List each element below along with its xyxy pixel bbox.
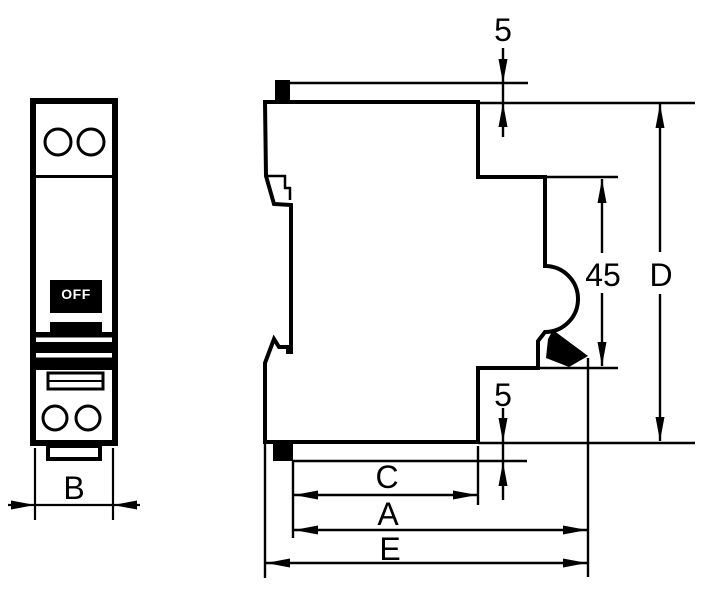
top-terminal-screw-left: [45, 129, 71, 155]
h45-arrow-down-icon: [598, 342, 607, 366]
dim-label-b: B: [57, 472, 91, 504]
din-clip-foot: [48, 446, 100, 459]
d-arrow-up-icon: [656, 104, 665, 128]
dim-label-45: 45: [583, 259, 623, 291]
band-white-line-1: [36, 338, 112, 343]
five-top-arrow-up-icon: [499, 103, 508, 127]
five-top-arrow-down-icon: [499, 59, 508, 83]
dim-label-5-top: 5: [488, 14, 518, 46]
five-bottom-arrow-down-icon: [499, 418, 508, 442]
bottom-terminal-block: [273, 444, 293, 461]
five-bottom-arrow-up-icon: [499, 462, 508, 486]
dim-label-d: D: [645, 259, 677, 291]
c-arrow-left-icon: [294, 491, 318, 500]
e-arrow-left-icon: [266, 559, 290, 568]
b-arrow-left-icon: [11, 501, 35, 510]
din-clip-hook: [546, 330, 588, 367]
toggle-switch-base: [50, 322, 102, 332]
c-arrow-right-icon: [453, 491, 477, 500]
dimension-a: [293, 526, 588, 535]
bottom-terminal-screw-right: [76, 406, 100, 430]
b-arrow-right-icon: [113, 501, 137, 510]
side-view: [265, 48, 695, 578]
drawing-linework: [0, 0, 714, 614]
front-view: [8, 101, 140, 520]
bottom-terminal-screw-left: [43, 406, 67, 430]
d-arrow-down-icon: [656, 417, 665, 441]
dim-label-c: C: [370, 461, 404, 493]
top-terminal-screw-right: [78, 129, 104, 155]
dim-label-e: E: [373, 533, 407, 565]
top-terminal-block: [275, 80, 290, 102]
side-profile-outline: [265, 102, 578, 442]
a-arrow-right-icon: [563, 526, 587, 535]
a-arrow-left-icon: [294, 526, 318, 535]
h45-arrow-up-icon: [598, 179, 607, 203]
dim-label-a: A: [371, 498, 405, 530]
band-white-line-2: [36, 353, 112, 358]
toggle-off-label: OFF: [50, 287, 102, 301]
drawing-canvas: OFF 5 45 D 5 C A E B: [0, 0, 714, 614]
e-arrow-right-icon: [563, 559, 587, 568]
dimension-e: [265, 559, 588, 568]
breaker-body-front: [33, 101, 115, 443]
dim-label-5-bottom: 5: [488, 379, 518, 411]
